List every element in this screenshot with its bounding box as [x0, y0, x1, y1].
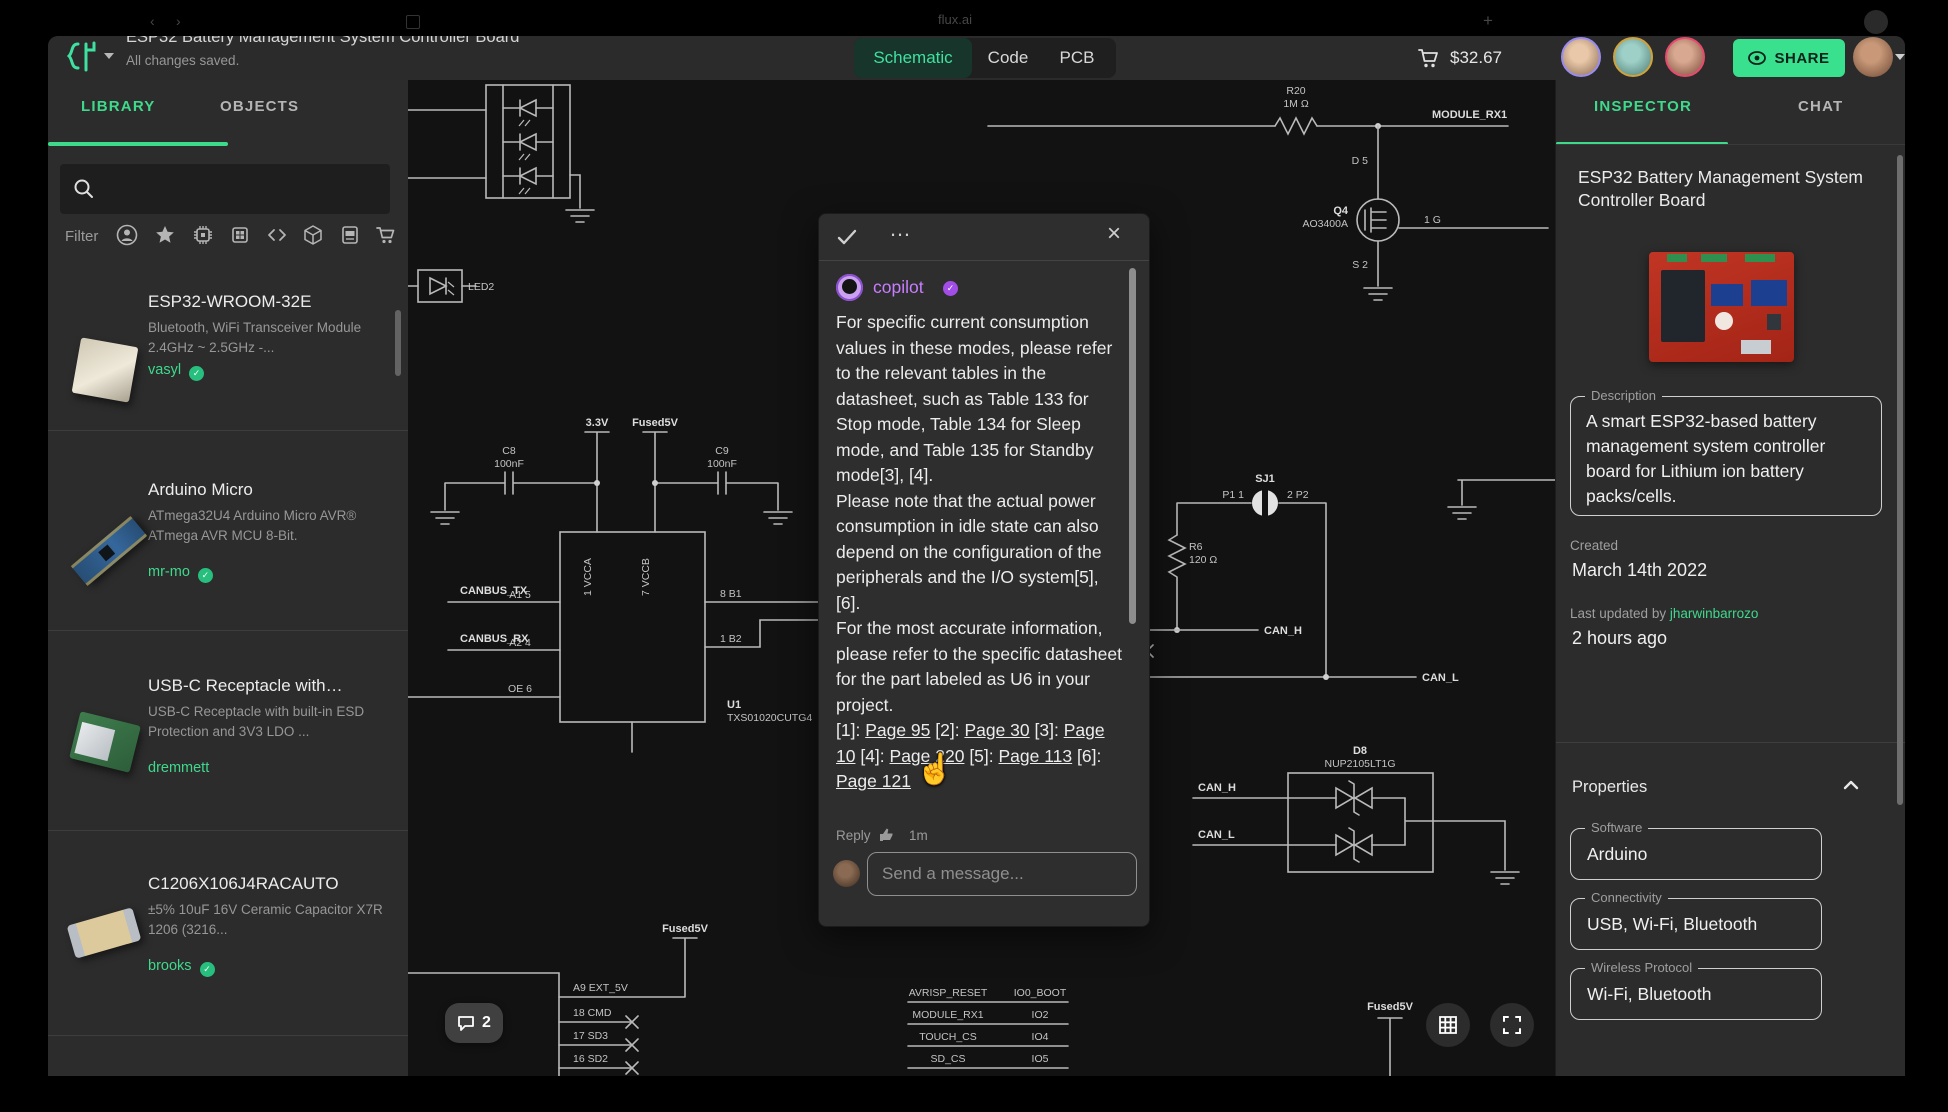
message-input[interactable] — [880, 860, 1124, 888]
window-title-clipped: ESP32 Battery Management System Controll… — [126, 36, 556, 47]
net-fused5v: Fused5V — [632, 417, 679, 429]
code-filter-icon[interactable] — [266, 224, 288, 246]
project-title: ESP32 Battery Management System Controll… — [1578, 166, 1868, 212]
u1-a2-pin: A2 4 — [509, 637, 531, 649]
collaborator-avatar[interactable] — [1665, 37, 1705, 77]
pin-sd2: 16 SD2 — [573, 1053, 608, 1065]
divider — [48, 430, 408, 431]
popup-scrollbar[interactable] — [1129, 268, 1136, 624]
component-desc: Bluetooth, WiFi Transceiver Module 2.4GH… — [148, 318, 388, 357]
filter-label: Filter — [65, 228, 98, 245]
cart-filter-icon[interactable] — [375, 224, 397, 246]
tab-library[interactable]: LIBRARY — [81, 98, 156, 115]
pin-ext5v: A9 EXT_5V — [573, 982, 628, 994]
u1-ref: U1 — [727, 699, 741, 711]
net-fused5v-2: Fused5V — [662, 923, 709, 935]
library-scrollbar[interactable] — [395, 310, 401, 376]
q4-part: AO3400A — [1302, 218, 1348, 230]
description-field[interactable]: Description A smart ESP32-based battery … — [1570, 396, 1882, 516]
message-paragraph: For specific current consumption values … — [836, 310, 1122, 489]
grid-toggle-button[interactable] — [1426, 1003, 1470, 1047]
fullscreen-button[interactable] — [1490, 1003, 1534, 1047]
comment-timestamp: 1m — [909, 828, 928, 843]
property-value: Arduino — [1587, 844, 1647, 865]
user-avatar[interactable] — [1853, 37, 1893, 77]
r6-ref: R6 — [1189, 541, 1203, 553]
property-field-software[interactable]: Software Arduino — [1570, 828, 1822, 880]
divider — [48, 830, 408, 831]
screen: ‹ › flux.ai + ESP32 Battery Management S… — [0, 0, 1948, 1112]
message-references: [1]: Page 95 [2]: Page 30 [3]: Page 10 [… — [836, 718, 1122, 795]
u1-part: TXS01020CUTG4 — [727, 712, 812, 724]
share-label: SHARE — [1774, 50, 1829, 67]
property-value: Wi-Fi, Bluetooth — [1587, 984, 1711, 1005]
net-3v3: 3.3V — [586, 417, 609, 429]
created-value: March 14th 2022 — [1572, 560, 1707, 581]
property-field-connectivity[interactable]: Connectivity USB, Wi-Fi, Bluetooth — [1570, 898, 1822, 950]
tab-code[interactable]: Code — [972, 38, 1044, 78]
component-author[interactable]: vasyl✓ — [148, 362, 204, 381]
property-value: USB, Wi-Fi, Bluetooth — [1587, 914, 1757, 935]
table-net: TOUCH_CS — [919, 1031, 977, 1043]
page-link[interactable]: Page 113 — [999, 746, 1073, 766]
browser-tab-title: flux.ai — [938, 12, 972, 27]
component-desc: USB-C Receptacle with built-in ESD Prote… — [148, 702, 388, 741]
browser-forward-icon[interactable]: › — [176, 13, 181, 29]
pin-sd3: 17 SD3 — [573, 1030, 608, 1042]
sj1-p1-pin: P1 1 — [1222, 489, 1244, 501]
comment-thread-popup: … × copilot ✓ For specific current consu… — [818, 213, 1150, 927]
component-title: C1206X106J4RACAUTO — [148, 874, 339, 894]
view-tabs: Schematic Code PCB — [854, 38, 1116, 78]
page-link[interactable]: Page 121 — [836, 771, 911, 791]
pdf-doc-filter-icon[interactable] — [339, 224, 361, 246]
d8-part: NUP2105LT1G — [1324, 758, 1395, 770]
app-window: ESP32 Battery Management System Controll… — [48, 36, 1905, 1076]
u1-vccb-pin: 7 VCCB — [640, 558, 652, 596]
sj1-p2-pin: 2 P2 — [1287, 489, 1309, 501]
u1-b2-pin: 1 B2 — [720, 633, 742, 645]
r20-ref: R20 — [1286, 85, 1305, 97]
component-thumbnail — [72, 337, 139, 402]
u1-vcca-pin: 1 VCCA — [582, 558, 594, 596]
library-search — [60, 164, 390, 214]
eye-icon — [1748, 51, 1766, 65]
table-net: IO0_BOOT — [1014, 987, 1067, 999]
share-button[interactable]: SHARE — [1733, 39, 1845, 77]
resolve-check-icon[interactable] — [837, 228, 857, 246]
property-label: Connectivity — [1585, 890, 1668, 905]
cart-icon[interactable] — [1416, 46, 1440, 70]
component-title: ESP32-WROOM-32E — [148, 292, 311, 312]
mouse-cursor-hand: ☝ — [916, 752, 953, 787]
component-title: USB-C Receptacle with… — [148, 676, 343, 696]
cart-total[interactable]: $32.67 — [1450, 48, 1502, 68]
collapse-chevron-icon[interactable] — [1842, 778, 1860, 792]
component-thumbnail — [69, 711, 141, 773]
collaborator-avatar[interactable] — [1561, 37, 1601, 77]
close-icon[interactable]: × — [1107, 220, 1121, 248]
description-label: Description — [1585, 388, 1662, 403]
component-thumbnail — [67, 907, 142, 958]
copilot-name: copilot — [873, 277, 924, 298]
thumbs-up-icon[interactable] — [879, 827, 894, 842]
table-net: IO2 — [1032, 1009, 1049, 1021]
copilot-message: For specific current consumption values … — [836, 310, 1122, 795]
user-menu-chevron-icon[interactable] — [1895, 54, 1905, 60]
component-author[interactable]: mr-mo✓ — [148, 564, 213, 583]
table-net: IO4 — [1032, 1031, 1049, 1043]
net-can-h-2: CAN_H — [1198, 782, 1236, 794]
copilot-avatar — [836, 274, 863, 301]
active-tab-underline — [48, 142, 228, 146]
fullscreen-icon — [1502, 1015, 1522, 1035]
inspector-sidebar: INSPECTOR CHAT ESP32 Battery Management … — [1555, 80, 1905, 1076]
browser-profile-avatar[interactable] — [1864, 10, 1888, 34]
component-desc: ATmega32U4 Arduino Micro AVR® ATmega AVR… — [148, 506, 388, 545]
property-label: Software — [1585, 820, 1648, 835]
board-preview-image[interactable] — [1649, 252, 1794, 362]
c8-value: 100nF — [494, 458, 524, 470]
search-input[interactable] — [104, 172, 378, 208]
component-desc: ±5% 10uF 16V Ceramic Capacitor X7R 1206 … — [148, 900, 388, 939]
r20-value: 1M Ω — [1283, 98, 1309, 110]
cube-filter-icon[interactable] — [302, 224, 324, 246]
divider — [48, 1035, 408, 1036]
q4-ref: Q4 — [1333, 205, 1349, 217]
sj1-ref: SJ1 — [1255, 473, 1275, 485]
tab-chat[interactable]: CHAT — [1798, 98, 1843, 115]
table-net: MODULE_RX1 — [912, 1009, 983, 1021]
project-menu-chevron-icon[interactable] — [104, 53, 114, 59]
comment-marker[interactable]: 2 — [445, 1003, 503, 1043]
lock-icon — [406, 15, 420, 29]
page-link[interactable]: Page 95 — [865, 720, 930, 740]
chip-filter-icon[interactable] — [192, 224, 214, 246]
c9-value: 100nF — [707, 458, 737, 470]
net-module-rx1: MODULE_RX1 — [1432, 109, 1507, 121]
property-label: Wireless Protocol — [1585, 960, 1698, 975]
r6-value: 120 Ω — [1189, 554, 1217, 566]
save-status: All changes saved. — [126, 53, 239, 68]
copilot-verified-icon: ✓ — [943, 281, 958, 296]
reply-user-avatar — [833, 860, 860, 887]
table-net: SD_CS — [930, 1053, 965, 1065]
led2-label: LED2 — [468, 281, 494, 293]
net-can-l: CAN_L — [1422, 672, 1459, 684]
person-filter-icon[interactable] — [116, 224, 138, 246]
net-can-h: CAN_H — [1264, 625, 1302, 637]
library-sidebar: LIBRARY OBJECTS Filter — [48, 80, 409, 1076]
divider — [48, 630, 408, 631]
verified-icon: ✓ — [198, 568, 213, 583]
c9-ref: C9 — [715, 445, 729, 457]
component-title: Arduino Micro — [148, 480, 253, 500]
divider — [1556, 742, 1905, 743]
reply-button[interactable]: Reply — [836, 828, 871, 843]
updated-label: Last updated by jharwinbarrozo — [1570, 606, 1758, 621]
c8-ref: C8 — [502, 445, 516, 457]
q4-source-pin: S 2 — [1352, 259, 1368, 271]
table-net: AVRISP_RESET — [909, 987, 988, 999]
app-header: ESP32 Battery Management System Controll… — [48, 36, 1905, 80]
updated-value: 2 hours ago — [1572, 628, 1667, 649]
message-input-box — [867, 852, 1137, 896]
collaborator-avatar[interactable] — [1613, 37, 1653, 77]
component-author[interactable]: brooks✓ — [148, 958, 215, 977]
search-icon — [72, 177, 96, 201]
verified-icon: ✓ — [200, 962, 215, 977]
u1-a1-pin: A1 5 — [509, 589, 531, 601]
pin-cmd: 18 CMD — [573, 1007, 612, 1019]
q4-gate-pin: 1 G — [1424, 214, 1441, 226]
created-label: Created — [1570, 538, 1618, 553]
page-link[interactable]: Page 30 — [964, 720, 1029, 740]
message-paragraph: For the most accurate information, pleas… — [836, 616, 1122, 718]
property-field-wireless[interactable]: Wireless Protocol Wi-Fi, Bluetooth — [1570, 968, 1822, 1020]
new-tab-button[interactable]: + — [1483, 11, 1493, 31]
comment-count: 2 — [482, 1014, 491, 1032]
u1-b1-pin: 8 B1 — [720, 588, 742, 600]
divider — [1556, 144, 1905, 145]
net-fused5v-3: Fused5V — [1367, 1001, 1414, 1013]
q4-drain-pin: D 5 — [1352, 155, 1369, 167]
component-thumbnail — [71, 516, 147, 586]
description-text: A smart ESP32-based battery management s… — [1571, 397, 1881, 521]
component-author[interactable]: dremmett — [148, 760, 209, 776]
tab-objects[interactable]: OBJECTS — [220, 98, 299, 115]
updated-by-link[interactable]: jharwinbarrozo — [1670, 606, 1759, 621]
verified-icon: ✓ — [189, 366, 204, 381]
thread-menu-button[interactable]: … — [889, 216, 913, 242]
comment-icon — [457, 1015, 475, 1031]
u1-oe-pin: OE 6 — [508, 683, 532, 695]
flux-logo-icon[interactable] — [64, 40, 100, 78]
module-filter-icon[interactable] — [229, 224, 251, 246]
tab-inspector[interactable]: INSPECTOR — [1594, 98, 1692, 115]
table-net: IO5 — [1032, 1053, 1049, 1065]
properties-header: Properties — [1572, 778, 1647, 797]
net-can-l-2: CAN_L — [1198, 829, 1235, 841]
d8-ref: D8 — [1353, 745, 1367, 757]
message-paragraph: Please note that the actual power consum… — [836, 489, 1122, 617]
browser-back-icon[interactable]: ‹ — [150, 13, 155, 29]
star-filter-icon[interactable] — [154, 224, 176, 246]
divider — [819, 260, 1149, 261]
tab-pcb[interactable]: PCB — [1044, 38, 1110, 78]
inspector-scrollbar[interactable] — [1897, 155, 1903, 805]
tab-schematic[interactable]: Schematic — [854, 38, 972, 78]
grid-icon — [1438, 1015, 1458, 1035]
